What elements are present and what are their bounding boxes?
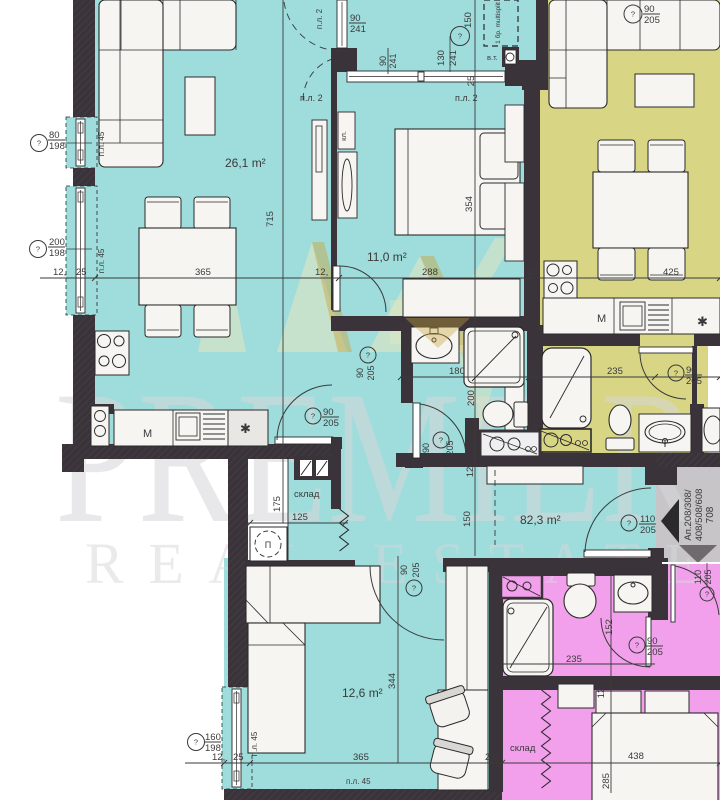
svg-text:п.л. 45: п.л. 45 bbox=[97, 248, 106, 273]
svg-text:?: ? bbox=[627, 519, 631, 528]
svg-text:п.л. 45: п.л. 45 bbox=[250, 731, 259, 756]
svg-text:365: 365 bbox=[195, 267, 211, 278]
svg-text:?: ? bbox=[439, 436, 443, 445]
svg-text:130: 130 bbox=[436, 50, 447, 66]
svg-text:12,: 12, bbox=[315, 267, 328, 278]
svg-text:M: M bbox=[143, 428, 152, 440]
svg-text:80: 80 bbox=[49, 130, 60, 141]
svg-text:90: 90 bbox=[378, 56, 388, 66]
svg-text:?: ? bbox=[674, 369, 678, 378]
svg-text:90: 90 bbox=[323, 407, 334, 418]
svg-text:90: 90 bbox=[399, 565, 409, 575]
svg-text:715: 715 bbox=[265, 211, 276, 227]
svg-text:п.л. 2: п.л. 2 bbox=[300, 93, 323, 103]
svg-text:?: ? bbox=[36, 245, 40, 254]
svg-text:25: 25 bbox=[233, 752, 244, 763]
svg-text:82,3 m²: 82,3 m² bbox=[520, 513, 561, 527]
svg-text:110: 110 bbox=[640, 514, 655, 525]
svg-text:M: M bbox=[597, 313, 606, 325]
svg-text:90: 90 bbox=[421, 443, 431, 453]
svg-text:241: 241 bbox=[350, 24, 366, 35]
svg-text:✱: ✱ bbox=[697, 314, 708, 329]
svg-text:25,: 25, bbox=[485, 752, 498, 763]
svg-text:90: 90 bbox=[644, 4, 655, 15]
svg-text:25: 25 bbox=[76, 267, 87, 278]
svg-text:?: ? bbox=[37, 139, 41, 148]
svg-text:П: П bbox=[265, 540, 271, 550]
svg-text:205: 205 bbox=[686, 376, 702, 387]
svg-text:235: 235 bbox=[607, 366, 623, 377]
svg-text:?: ? bbox=[311, 412, 315, 421]
svg-text:25: 25 bbox=[466, 76, 477, 87]
svg-text:175: 175 bbox=[272, 496, 283, 512]
svg-text:205: 205 bbox=[323, 418, 339, 429]
svg-text:200: 200 bbox=[49, 237, 65, 248]
svg-text:11,0 m²: 11,0 m² bbox=[367, 250, 407, 264]
svg-text:200: 200 bbox=[466, 390, 477, 406]
svg-text:Ап.208/308/: Ап.208/308/ bbox=[683, 489, 694, 540]
svg-text:90: 90 bbox=[350, 13, 361, 24]
svg-text:90: 90 bbox=[647, 636, 658, 647]
svg-text:205: 205 bbox=[703, 569, 713, 584]
svg-text:288: 288 bbox=[422, 267, 438, 278]
svg-text:160: 160 bbox=[205, 732, 221, 743]
svg-text:425: 425 bbox=[663, 267, 679, 278]
svg-text:?: ? bbox=[631, 10, 635, 19]
svg-text:п.л. 45: п.л. 45 bbox=[97, 131, 106, 156]
svg-text:26,1 m²: 26,1 m² bbox=[225, 156, 266, 170]
svg-text:кл.: кл. bbox=[339, 131, 348, 141]
svg-text:125: 125 bbox=[292, 512, 308, 523]
svg-text:198: 198 bbox=[205, 743, 221, 754]
svg-text:п.л. 2: п.л. 2 bbox=[455, 93, 478, 103]
svg-text:12,: 12, bbox=[53, 267, 66, 278]
svg-text:?: ? bbox=[412, 584, 416, 593]
svg-text:склад: склад bbox=[510, 743, 536, 754]
svg-text:п.л. 45: п.л. 45 bbox=[346, 777, 371, 786]
svg-text:198: 198 bbox=[49, 248, 65, 259]
svg-text:?: ? bbox=[458, 32, 462, 41]
svg-text:365: 365 bbox=[353, 752, 369, 763]
svg-text:1 бр. multisplit: 1 бр. multisplit bbox=[494, 2, 502, 44]
svg-text:12,6 m²: 12,6 m² bbox=[342, 686, 383, 700]
svg-text:90: 90 bbox=[686, 365, 697, 376]
svg-text:110: 110 bbox=[693, 570, 703, 584]
svg-text:344: 344 bbox=[387, 673, 398, 689]
svg-text:235: 235 bbox=[566, 654, 582, 665]
svg-text:205: 205 bbox=[647, 647, 663, 658]
svg-text:12: 12 bbox=[596, 688, 607, 699]
svg-text:285: 285 bbox=[601, 773, 612, 789]
svg-text:п.л. 2: п.л. 2 bbox=[315, 8, 324, 29]
svg-text:708: 708 bbox=[705, 506, 716, 523]
svg-text:205: 205 bbox=[411, 562, 421, 577]
svg-text:205: 205 bbox=[366, 365, 376, 380]
svg-text:25: 25 bbox=[527, 267, 538, 278]
svg-text:180: 180 bbox=[449, 366, 465, 377]
svg-text:в.т.: в.т. bbox=[487, 53, 498, 62]
svg-text:?: ? bbox=[635, 641, 639, 650]
svg-text:152: 152 bbox=[604, 619, 615, 635]
svg-text:12: 12 bbox=[465, 467, 476, 478]
svg-text:склад: склад bbox=[294, 489, 320, 500]
svg-text:150: 150 bbox=[463, 12, 474, 28]
svg-text:✱: ✱ bbox=[240, 421, 251, 436]
svg-text:241: 241 bbox=[388, 53, 398, 68]
svg-text:354: 354 bbox=[464, 196, 475, 212]
svg-text:150: 150 bbox=[462, 511, 473, 527]
svg-text:?: ? bbox=[705, 590, 709, 599]
svg-text:25: 25 bbox=[527, 366, 538, 377]
svg-text:205: 205 bbox=[644, 15, 660, 26]
svg-text:?: ? bbox=[366, 351, 370, 360]
svg-text:438: 438 bbox=[628, 751, 644, 762]
svg-text:408/508/608: 408/508/608 bbox=[694, 489, 705, 542]
svg-text:90: 90 bbox=[355, 368, 365, 378]
svg-text:?: ? bbox=[194, 738, 198, 747]
svg-text:205: 205 bbox=[640, 525, 656, 536]
svg-text:205: 205 bbox=[445, 440, 455, 455]
